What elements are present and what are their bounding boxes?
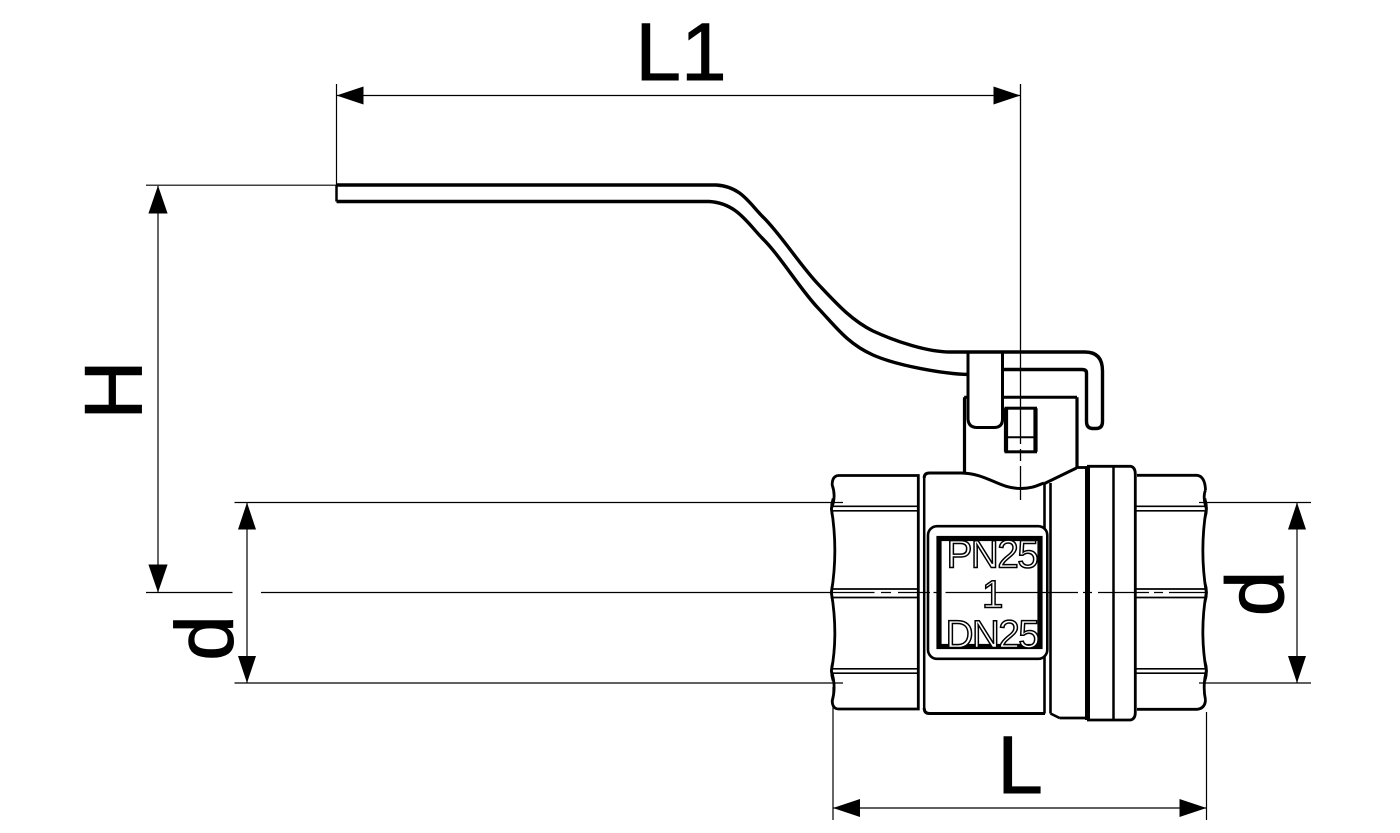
svg-text:DN25: DN25: [946, 614, 1039, 657]
svg-text:PN25: PN25: [947, 534, 1038, 577]
svg-text:d: d: [1210, 571, 1301, 617]
svg-text:1: 1: [982, 574, 1002, 617]
svg-text:L: L: [997, 720, 1043, 811]
svg-text:H: H: [69, 360, 160, 419]
svg-text:L1: L1: [635, 7, 726, 98]
svg-text:d: d: [160, 615, 251, 661]
